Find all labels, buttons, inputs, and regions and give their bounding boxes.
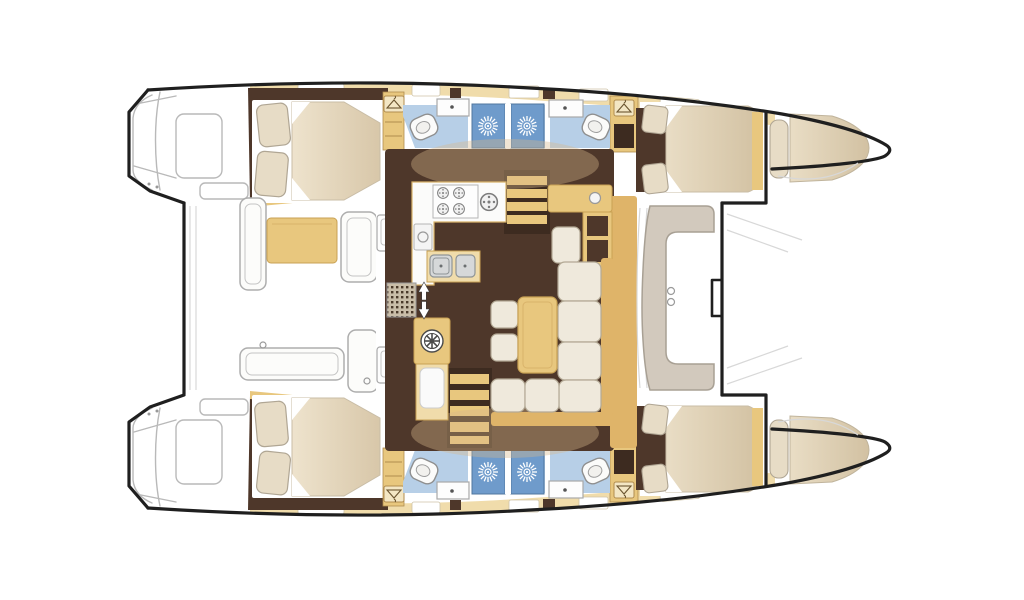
sofa-cushion — [525, 379, 559, 412]
cockpit-bench — [341, 212, 377, 282]
ottoman — [491, 301, 518, 328]
sofa-backrest — [491, 412, 613, 426]
cockpit-bench — [240, 198, 266, 290]
sofa-corner-cushion — [559, 380, 601, 412]
sofa-backrest — [601, 258, 613, 416]
deck-ring — [668, 299, 675, 306]
vent-grille — [387, 283, 416, 317]
sofa-cushion — [558, 342, 601, 380]
nav-seat — [552, 227, 580, 263]
catamaran-floorplan — [0, 0, 1024, 600]
cockpit-bench — [348, 330, 378, 392]
salon-sideboard — [610, 196, 637, 448]
helm-console — [414, 318, 450, 420]
helm-wheel-icon — [421, 330, 443, 352]
sofa-cushion — [558, 262, 601, 301]
oven — [414, 224, 432, 250]
coffee-table — [518, 297, 557, 373]
sofa-cushion — [491, 379, 525, 412]
cockpit-table — [267, 218, 337, 263]
boat-floorplan-canvas — [0, 0, 1024, 600]
instrument-dial — [590, 193, 601, 204]
ottoman — [491, 334, 518, 361]
chart-desk — [548, 185, 612, 212]
sofa-cushion — [558, 301, 601, 342]
deck-ring — [668, 288, 675, 295]
